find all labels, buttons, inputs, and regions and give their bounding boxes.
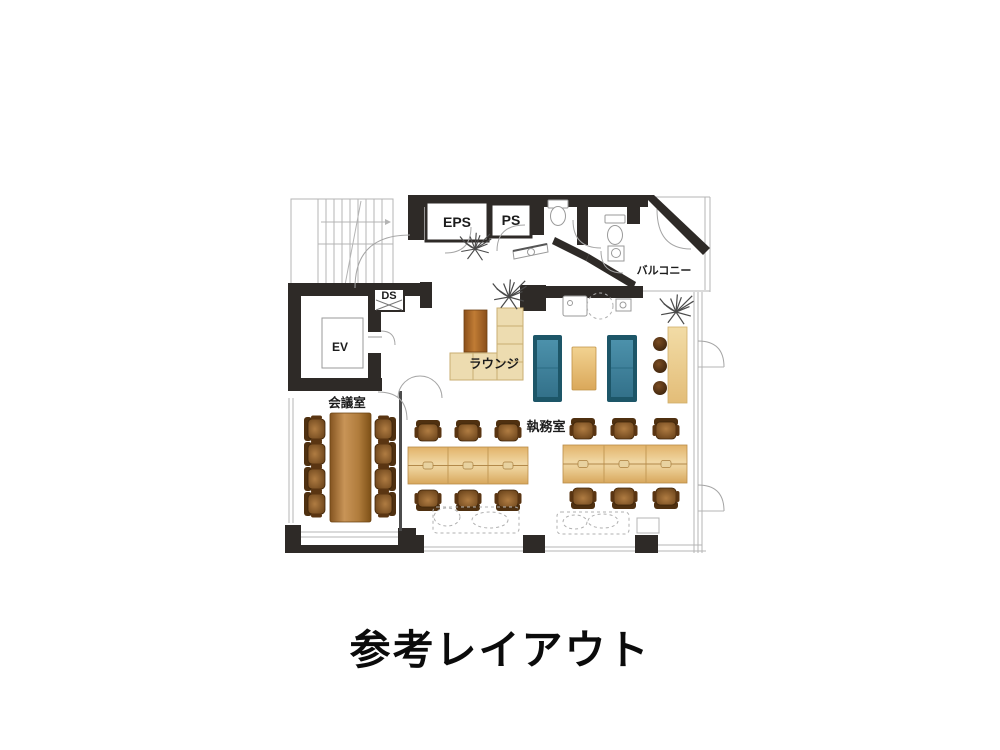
label-balcony: バルコニー bbox=[637, 264, 692, 277]
stool bbox=[653, 337, 667, 351]
right-window-wall bbox=[694, 292, 724, 553]
label-office: 執務室 bbox=[526, 419, 565, 434]
label-ps: PS bbox=[502, 212, 521, 228]
sofa-set bbox=[533, 335, 637, 402]
stool bbox=[653, 359, 667, 373]
meeting-table-set bbox=[304, 413, 396, 522]
counter bbox=[653, 327, 687, 403]
desk-island-right bbox=[563, 418, 687, 509]
label-ds: DS bbox=[381, 290, 396, 302]
label-lounge: ラウンジ bbox=[469, 357, 520, 371]
staircase bbox=[291, 199, 393, 289]
label-eps: EPS bbox=[443, 214, 471, 230]
caption: 参考レイアウト bbox=[0, 616, 1000, 676]
lounge-table bbox=[464, 310, 487, 352]
floor-plan: EPS PS DS EV バルコニー ラウンジ 会議室 執務室 bbox=[285, 185, 725, 565]
window-shrubs bbox=[433, 507, 629, 534]
stool bbox=[653, 381, 667, 395]
label-meeting-room: 会議室 bbox=[328, 395, 366, 410]
label-ev: EV bbox=[332, 340, 348, 354]
desk-island-left bbox=[408, 420, 528, 511]
